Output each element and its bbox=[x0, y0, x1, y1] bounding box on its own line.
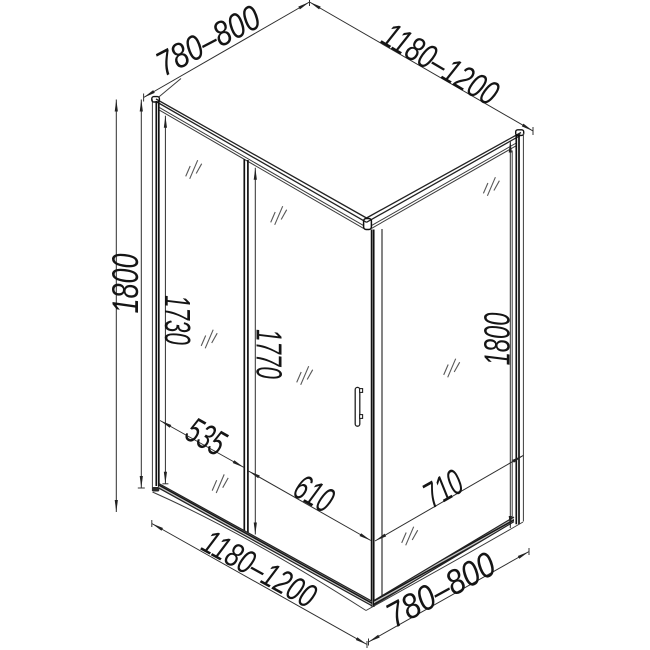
svg-text:610: 610 bbox=[287, 468, 340, 521]
svg-text:1800: 1800 bbox=[105, 253, 146, 313]
svg-text:780–800: 780–800 bbox=[149, 0, 266, 84]
svg-text:1730: 1730 bbox=[157, 295, 197, 345]
svg-text:780–800: 780–800 bbox=[379, 544, 502, 635]
svg-text:1800: 1800 bbox=[477, 313, 517, 366]
svg-text:1770: 1770 bbox=[248, 329, 288, 379]
svg-text:1180–1200: 1180–1200 bbox=[196, 523, 323, 616]
svg-text:710: 710 bbox=[417, 463, 470, 516]
svg-text:1180–1200: 1180–1200 bbox=[375, 15, 505, 114]
